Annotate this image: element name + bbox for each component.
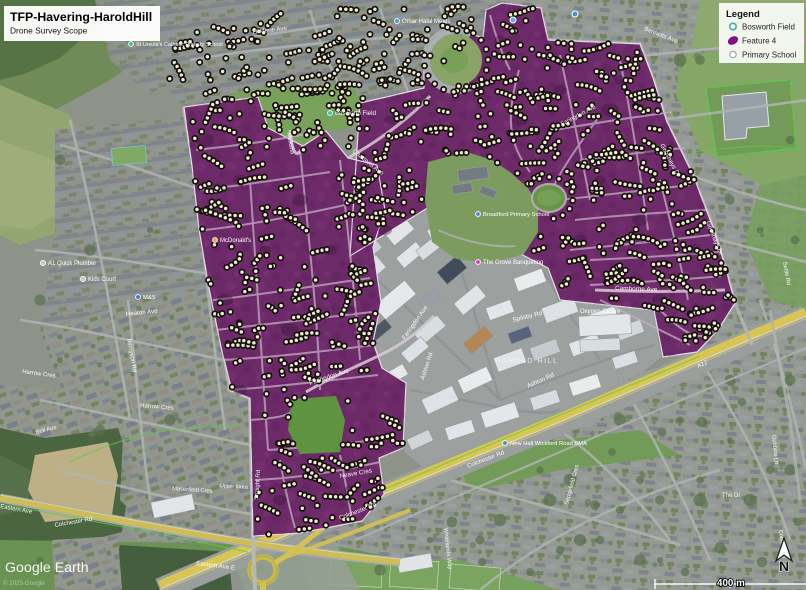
svg-text:M&S: M&S — [143, 295, 156, 301]
svg-text:Primary School: Primary School — [742, 51, 796, 60]
svg-text:Kids Court: Kids Court — [88, 277, 116, 283]
svg-text:Camborne Ave: Camborne Ave — [615, 285, 658, 293]
svg-text:McDonald's: McDonald's — [220, 238, 251, 244]
svg-text:The Grove Banqueting: The Grove Banqueting — [483, 260, 543, 266]
svg-text:Broadford Primary School: Broadford Primary School — [483, 212, 549, 218]
svg-text:The Dr: The Dr — [722, 493, 740, 499]
svg-text:HAROLD HILL: HAROLD HILL — [495, 356, 559, 365]
svg-text:Google Earth: Google Earth — [5, 560, 89, 576]
svg-text:A1 Quick Plumber: A1 Quick Plumber — [48, 261, 96, 267]
svg-text:TFP-Havering-HaroldHill: TFP-Havering-HaroldHill — [10, 10, 152, 24]
svg-text:Oxygen Centre: Oxygen Centre — [580, 309, 621, 315]
svg-text:Bosworth Field: Bosworth Field — [335, 110, 376, 117]
svg-text:New Hall Wickford Road BMA: New Hall Wickford Road BMA — [510, 441, 587, 447]
svg-text:Feature 4: Feature 4 — [742, 37, 777, 46]
svg-text:Drone Survey Scope: Drone Survey Scope — [10, 26, 88, 36]
svg-text:Omar Halal Meats: Omar Halal Meats — [402, 19, 450, 25]
svg-text:© 2025 Google: © 2025 Google — [3, 580, 45, 587]
svg-text:Bosworth Field: Bosworth Field — [742, 23, 795, 32]
svg-text:Legend: Legend — [726, 9, 760, 20]
svg-text:St Ursula's Catholic Primary S: St Ursula's Catholic Primary School — [136, 42, 223, 48]
svg-text:400 m: 400 m — [717, 578, 745, 589]
svg-text:N: N — [779, 558, 789, 574]
